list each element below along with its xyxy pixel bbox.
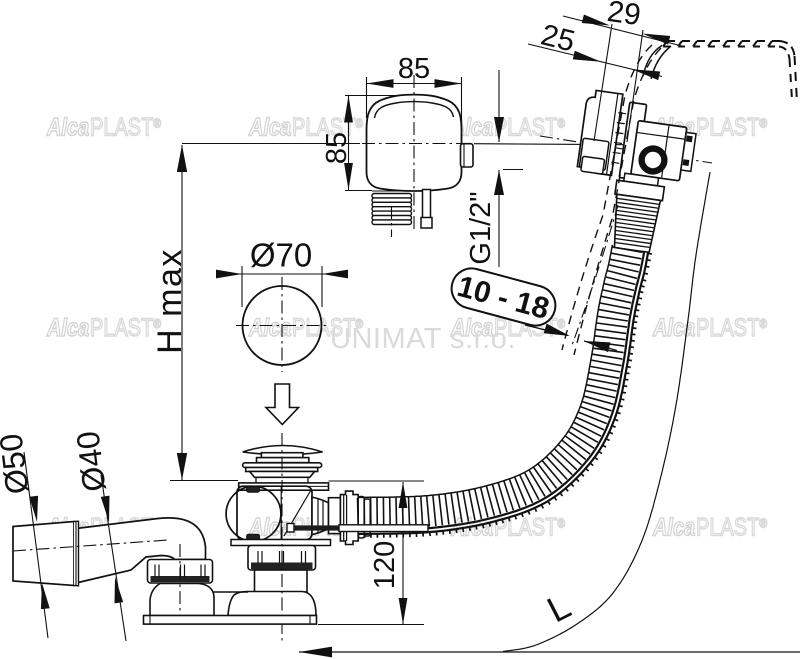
- svg-text:AlcaPLAST®: AlcaPLAST®: [46, 113, 161, 141]
- svg-text:AlcaPLAST®: AlcaPLAST®: [652, 513, 767, 541]
- svg-text:L: L: [541, 585, 577, 631]
- svg-text:UNIMAT s.r.o.: UNIMAT s.r.o.: [330, 323, 516, 355]
- svg-text:29: 29: [605, 0, 643, 32]
- svg-text:25: 25: [538, 18, 578, 58]
- svg-text:AlcaPLAST®: AlcaPLAST®: [46, 314, 161, 342]
- svg-text:Ø40: Ø40: [69, 429, 112, 493]
- svg-text:H max: H max: [151, 248, 189, 354]
- svg-text:G1/2": G1/2": [465, 191, 497, 264]
- svg-text:AlcaPLAST®: AlcaPLAST®: [652, 314, 767, 342]
- svg-text:Ø50: Ø50: [0, 432, 36, 496]
- svg-text:Ø70: Ø70: [250, 237, 312, 274]
- svg-text:120: 120: [369, 541, 401, 589]
- svg-text:85: 85: [321, 132, 353, 164]
